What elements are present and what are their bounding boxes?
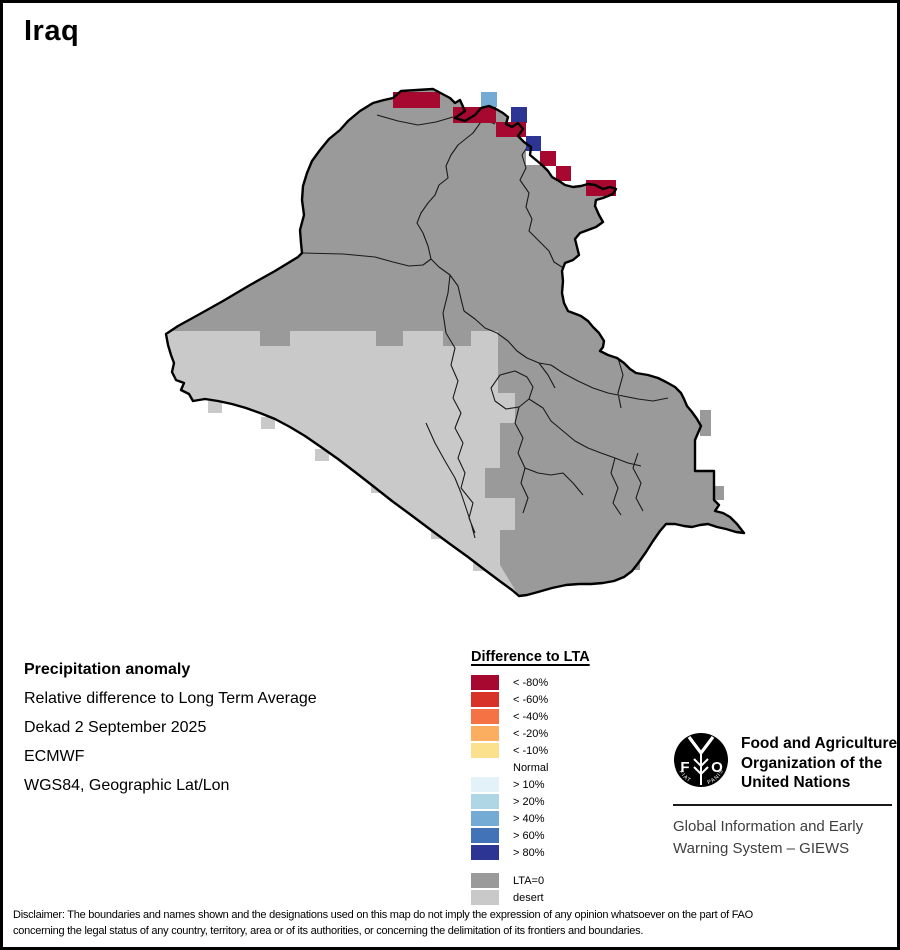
- legend-item: > 40%: [471, 810, 641, 827]
- branding-divider: [673, 804, 892, 806]
- iraq-map: [143, 78, 755, 626]
- fao-org-line: Organization of the: [741, 754, 897, 774]
- info-source: ECMWF: [24, 742, 317, 771]
- legend-item: < -80%: [471, 674, 641, 691]
- legend-swatch: [471, 675, 499, 690]
- legend-label: > 60%: [513, 830, 545, 842]
- legend: Difference to LTA < -80%< -60%< -40%< -2…: [471, 649, 641, 906]
- anomaly-cell: [481, 92, 497, 107]
- legend-label: > 20%: [513, 796, 545, 808]
- legend-swatch: [471, 743, 499, 758]
- anomaly-cell: [540, 151, 556, 166]
- legend-item: Normal: [471, 759, 641, 776]
- disclaimer: Disclaimer: The boundaries and names sho…: [13, 907, 889, 939]
- legend-item: > 60%: [471, 827, 641, 844]
- fao-org-line: United Nations: [741, 773, 897, 793]
- legend-label: > 40%: [513, 813, 545, 825]
- legend-title: Difference to LTA: [471, 649, 641, 665]
- legend-swatch: [471, 709, 499, 724]
- legend-label: desert: [513, 892, 544, 904]
- legend-swatch: [471, 726, 499, 741]
- legend-swatch: [471, 760, 499, 775]
- disclaimer-line: concerning the legal status of any count…: [13, 923, 889, 939]
- legend-item: < -20%: [471, 725, 641, 742]
- legend-swatch: [471, 794, 499, 809]
- giews-line: Global Information and Early: [673, 816, 895, 838]
- legend-swatch: [471, 845, 499, 860]
- info-subtitle: Relative difference to Long Term Average: [24, 684, 317, 713]
- legend-base-rows: LTA=0desert: [471, 872, 641, 906]
- info-dekad: Dekad 2 September 2025: [24, 713, 317, 742]
- legend-label: < -60%: [513, 694, 548, 706]
- legend-item: < -10%: [471, 742, 641, 759]
- legend-label: > 10%: [513, 779, 545, 791]
- map-page: Iraq: [0, 0, 900, 950]
- fao-org-line: Food and Agriculture: [741, 734, 897, 754]
- legend-swatch: [471, 828, 499, 843]
- legend-item: > 80%: [471, 844, 641, 861]
- map-info-block: Precipitation anomaly Relative differenc…: [24, 655, 317, 800]
- legend-rows: < -80%< -60%< -40%< -20%< -10%Normal> 10…: [471, 674, 641, 861]
- giews-line: Warning System – GIEWS: [673, 838, 895, 860]
- legend-swatch: [471, 873, 499, 888]
- info-projection: WGS84, Geographic Lat/Lon: [24, 771, 317, 800]
- legend-swatch: [471, 777, 499, 792]
- fao-org-name: Food and Agriculture Organization of the…: [741, 734, 897, 793]
- desert-region: [143, 331, 523, 623]
- legend-swatch: [471, 692, 499, 707]
- fao-logo: F O FIAT PANIS: [673, 731, 731, 789]
- anomaly-cell: [511, 107, 527, 123]
- legend-swatch: [471, 811, 499, 826]
- anomaly-cell: [393, 92, 440, 108]
- anomaly-cell: [556, 166, 571, 181]
- legend-item: desert: [471, 889, 641, 906]
- legend-label: Normal: [513, 762, 548, 774]
- disclaimer-line: Disclaimer: The boundaries and names sho…: [13, 907, 889, 923]
- legend-label: < -20%: [513, 728, 548, 740]
- fao-branding: F O FIAT PANIS Food and Agriculture Orga…: [673, 731, 895, 860]
- page-title: Iraq: [24, 15, 79, 48]
- legend-gap: [471, 861, 641, 872]
- legend-label: < -80%: [513, 677, 548, 689]
- legend-label: LTA=0: [513, 875, 544, 887]
- legend-label: < -40%: [513, 711, 548, 723]
- legend-swatch: [471, 890, 499, 905]
- legend-label: > 80%: [513, 847, 545, 859]
- info-title: Precipitation anomaly: [24, 655, 317, 684]
- legend-item: < -60%: [471, 691, 641, 708]
- legend-item: > 10%: [471, 776, 641, 793]
- legend-item: LTA=0: [471, 872, 641, 889]
- legend-label: < -10%: [513, 745, 548, 757]
- giews-label: Global Information and Early Warning Sys…: [673, 816, 895, 860]
- anomaly-cell: [526, 136, 541, 151]
- legend-item: > 20%: [471, 793, 641, 810]
- legend-item: < -40%: [471, 708, 641, 725]
